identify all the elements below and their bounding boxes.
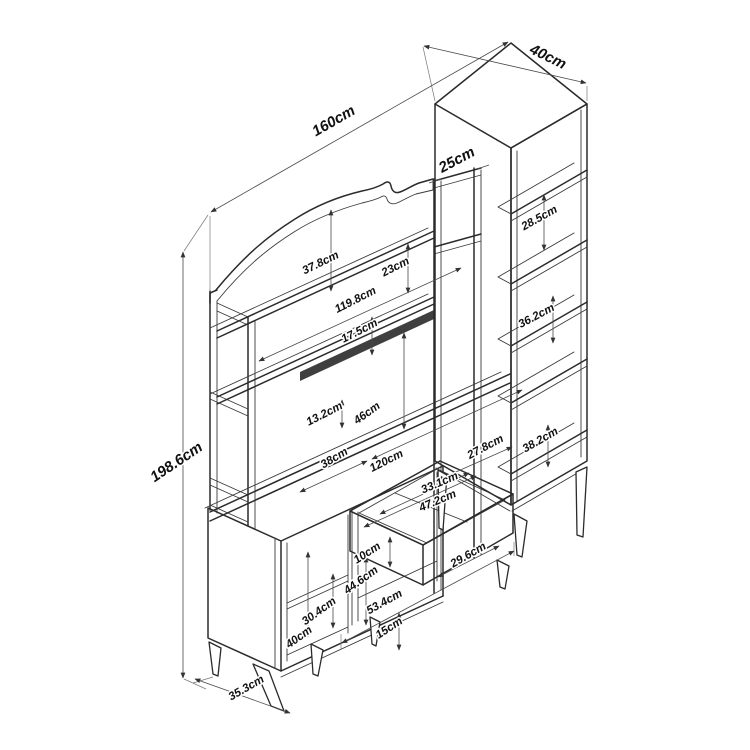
dimension-label-niche-height: 46cm (351, 400, 383, 428)
base-cabinets (208, 466, 443, 677)
dimension-label-counter-left-width: 38cm (319, 446, 350, 471)
right-column (435, 43, 587, 511)
furniture-line-art: 160cm40cm25cm198.6cm37.8cm23cm119.8cm17.… (0, 0, 750, 750)
dimension-label-overall-height: 198.6cm (147, 439, 206, 486)
dimension-label-column-depth: 40cm (526, 40, 569, 73)
dimension-label-leg-height: 15cm (374, 615, 405, 641)
dimension-label-column-gap-2: 36.2cm (517, 302, 557, 331)
hutch-shelves (205, 228, 510, 521)
dimension-label-rail-height: 13.2cm (305, 400, 345, 428)
dimension-label-base-inner-height: 44.6cm (341, 564, 380, 597)
dimension-label-column-gap-3: 38.2cm (521, 425, 561, 455)
dimension-lines (183, 42, 586, 713)
hutch-left-frame (210, 291, 255, 529)
dimension-label-overall-width: 160cm (309, 102, 358, 140)
extension-lines (184, 47, 587, 689)
dimension-label-hutch-inner-width: 119.8cm (333, 285, 378, 316)
dimension-label-cabinet-height: 40cm (283, 624, 315, 652)
dimension-label-counter-right-width: 27.8cm (465, 433, 506, 462)
dimension-label-base-opening-width: 29.6cm (448, 540, 489, 570)
dimension-label-cabinet-depth: 35.3cm (227, 673, 267, 703)
dimension-label-pediment-height: 37.8cm (301, 249, 341, 277)
diagram-canvas: 160cm40cm25cm198.6cm37.8cm23cm119.8cm17.… (0, 0, 750, 750)
dimension-label-shelf-gap-top: 23cm (379, 255, 412, 280)
dimension-label-column-gap-1: 28.5cm (519, 204, 560, 234)
dimension-label-drawer-height: 10cm (352, 540, 383, 566)
dimension-label-top-frame-width: 25cm (435, 144, 478, 177)
